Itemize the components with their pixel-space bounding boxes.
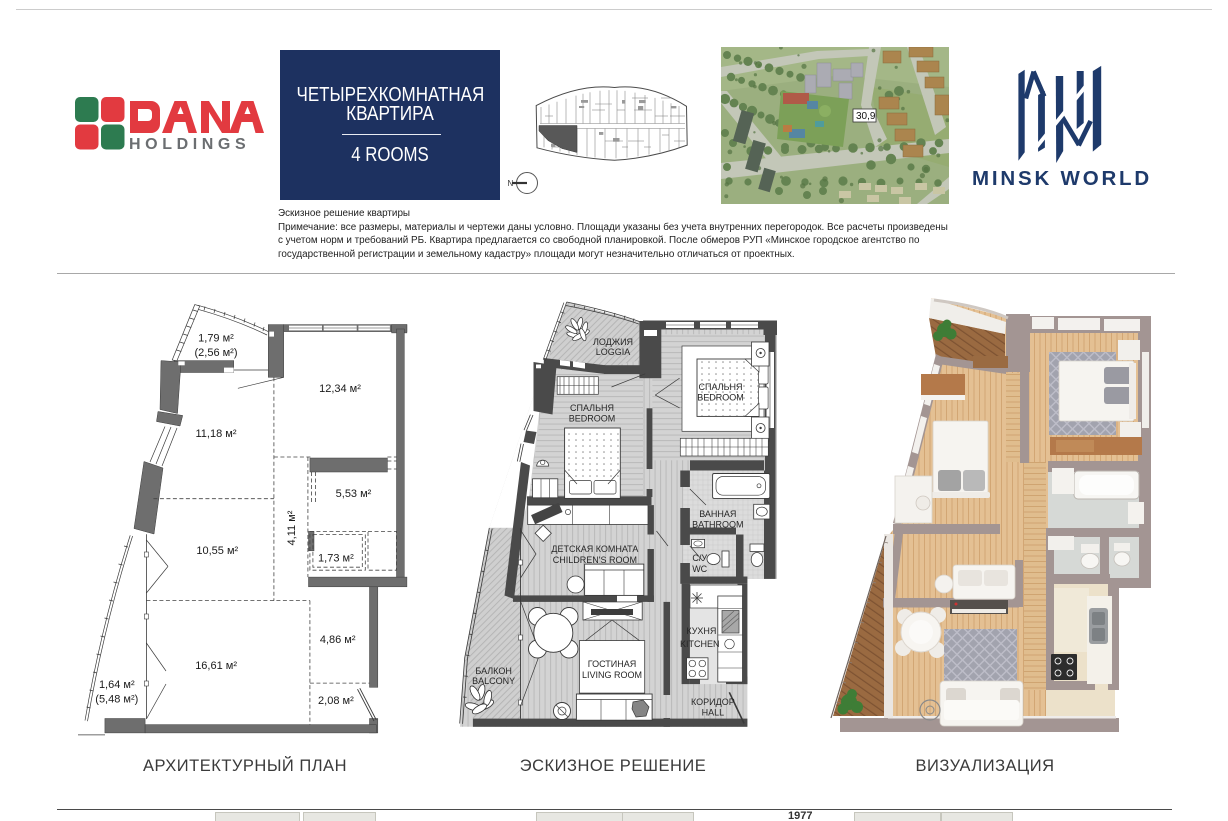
svg-text:LOGGIA: LOGGIA xyxy=(596,347,631,357)
svg-text:2,08 м²: 2,08 м² xyxy=(318,695,354,707)
svg-text:CHILDREN'S ROOM: CHILDREN'S ROOM xyxy=(553,555,637,565)
svg-text:BEDROOM: BEDROOM xyxy=(569,414,616,424)
svg-text:С/У: С/У xyxy=(692,553,707,563)
svg-text:11,18 м²: 11,18 м² xyxy=(196,428,237,440)
svg-text:ГОСТИНАЯ: ГОСТИНАЯ xyxy=(588,659,637,669)
svg-text:КУХНЯ: КУХНЯ xyxy=(686,626,716,636)
svg-text:KITCHEN: KITCHEN xyxy=(680,639,720,649)
svg-text:КОРИДОР: КОРИДОР xyxy=(691,697,735,707)
svg-text:10,55 м²: 10,55 м² xyxy=(196,545,238,557)
svg-text:WC: WC xyxy=(692,564,707,574)
svg-text:СПАЛЬНЯ: СПАЛЬНЯ xyxy=(699,382,743,392)
svg-text:BALCONY: BALCONY xyxy=(472,676,515,686)
svg-text:4,86 м²: 4,86 м² xyxy=(320,634,356,646)
svg-text:5,53 м²: 5,53 м² xyxy=(336,488,372,500)
svg-text:4,11 м²: 4,11 м² xyxy=(286,510,298,545)
svg-text:BATHROOM: BATHROOM xyxy=(692,520,743,530)
svg-text:30,9: 30,9 xyxy=(856,111,876,122)
svg-text:BEDROOM: BEDROOM xyxy=(697,393,744,403)
svg-text:(2,56 м²): (2,56 м²) xyxy=(194,347,237,359)
svg-text:HOLDINGS: HOLDINGS xyxy=(129,136,250,153)
svg-text:ЛОДЖИЯ: ЛОДЖИЯ xyxy=(593,337,633,347)
svg-text:N: N xyxy=(508,179,514,188)
svg-text:12,34 м²: 12,34 м² xyxy=(319,383,361,395)
svg-text:ДЕТСКАЯ КОМНАТА: ДЕТСКАЯ КОМНАТА xyxy=(551,544,638,554)
svg-text:ВАННАЯ: ВАННАЯ xyxy=(699,509,736,519)
svg-text:1,64 м²: 1,64 м² xyxy=(99,679,135,691)
svg-text:(5,48 м²): (5,48 м²) xyxy=(95,694,138,706)
svg-text:1,79 м²: 1,79 м² xyxy=(198,333,234,345)
svg-text:LIVING ROOM: LIVING ROOM xyxy=(582,670,642,680)
svg-text:СПАЛЬНЯ: СПАЛЬНЯ xyxy=(570,403,614,413)
svg-text:1,73 м²: 1,73 м² xyxy=(318,553,354,565)
svg-text:HALL: HALL xyxy=(702,708,725,718)
svg-text:MINSK WORLD: MINSK WORLD xyxy=(972,167,1152,190)
svg-text:16,61 м²: 16,61 м² xyxy=(195,660,237,672)
svg-text:БАЛКОН: БАЛКОН xyxy=(475,666,511,676)
